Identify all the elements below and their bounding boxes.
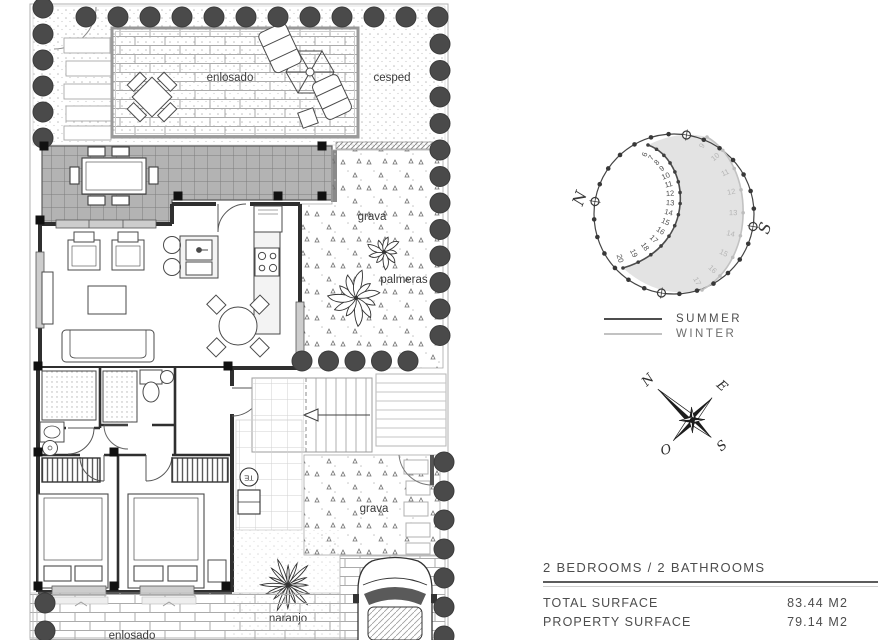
compass-rose: N E S O [610,366,780,486]
winter-label: WINTER [676,328,736,340]
property-surface-row: PROPERTY SURFACE 79.14 M2 [543,613,878,632]
svg-text:19: 19 [628,247,640,258]
label-palmeras: palmeras [380,274,428,286]
tv-unit [42,272,53,324]
nightstand [208,560,226,582]
svg-text:12: 12 [726,187,736,197]
toilet [43,441,58,456]
shower-tray [103,371,137,422]
car [353,558,437,640]
label-enlosado-bottom: enlosado [109,630,156,640]
enlosado-bottom-area: enlosado [30,593,340,640]
basin [161,371,174,384]
sofa [62,330,154,362]
compass-n: N [638,371,658,391]
te-utility-label: TE [244,474,254,483]
garden-cesped-area: enlosado cesped [33,6,445,149]
shower-tray [42,371,96,420]
car-roof [368,607,422,640]
house-living-kitchen [36,204,304,368]
winter-line-swatch [604,333,662,335]
coffee-table [88,286,126,314]
label-enlosado-top: enlosado [207,72,254,84]
plan-sheet: enlosado cesped grava palmeras [0,0,878,640]
legend-summer: SUMMER [604,311,784,326]
label-grava-top: grava [358,211,387,223]
living-terrace-window [56,220,156,228]
bed-2 [128,494,204,588]
kitchen-counter [254,232,280,334]
wardrobe-bedroom-1 [42,458,100,482]
summer-label: SUMMER [676,313,742,325]
label-cesped: cesped [373,72,410,84]
stove [255,248,279,276]
info-panel: 2 BEDROOMS / 2 BATHROOMS TOTAL SURFACE 8… [543,560,878,632]
summer-line-swatch [604,318,662,320]
label-grava-bottom: grava [360,503,389,515]
driveway [340,556,445,640]
svg-text:13: 13 [729,208,737,217]
svg-text:13: 13 [666,198,675,208]
legend-winter: WINTER [604,326,784,341]
svg-text:18: 18 [639,241,651,253]
bed-1 [38,494,108,588]
sink-peninsula [180,236,218,278]
porch-patio: TE [236,420,302,530]
divider-dark [543,581,878,583]
sun-legend: SUMMER WINTER [604,311,784,341]
north-label: N [568,187,591,209]
svg-text:20: 20 [615,253,626,264]
toilet [143,382,159,402]
compass-s: S [714,438,731,455]
wardrobe-bedroom-2 [172,458,228,482]
total-surface-label: TOTAL SURFACE [543,594,658,613]
bedrooms-bathrooms-heading: 2 BEDROOMS / 2 BATHROOMS [543,560,878,581]
property-surface-value: 79.14 M2 [787,613,848,632]
sun-path-diagram: 6789101112131415161718192091011121314151… [566,104,794,340]
total-surface-value: 83.44 M2 [787,594,848,613]
total-surface-row: TOTAL SURFACE 83.44 M2 [543,594,878,613]
compass-o: O [659,442,674,459]
svg-text:17: 17 [648,233,660,245]
bedroom-block [38,368,262,595]
gate-leaf [430,455,434,485]
fence-strip [336,142,445,149]
south-label: S [754,220,776,237]
divider-light [543,586,878,587]
floor-plan-drawing: enlosado cesped grava palmeras [0,0,460,640]
property-surface-label: PROPERTY SURFACE [543,613,691,632]
compass-e: E [712,377,730,396]
svg-text:12: 12 [666,188,675,198]
